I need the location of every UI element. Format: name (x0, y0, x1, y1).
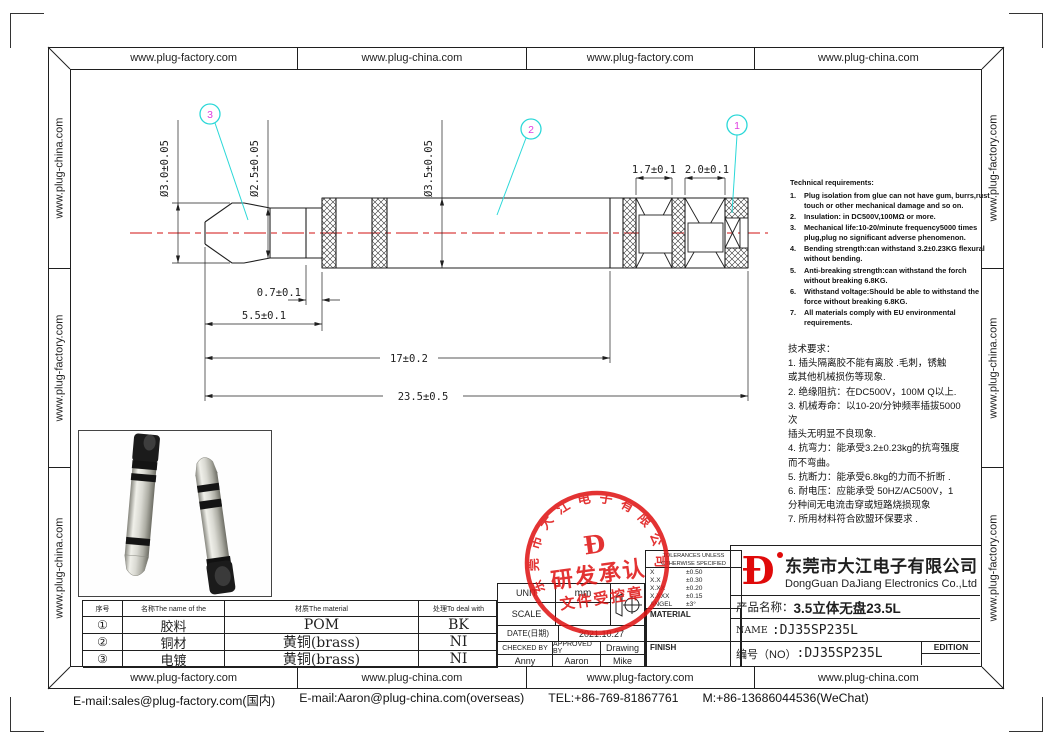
border-band-bottom: www.plug-factory.com www.plug-china.com … (70, 667, 982, 689)
hatch-bands (322, 198, 748, 268)
cn-line: 分种间无电流击穿或短路烧损现象 (788, 499, 996, 513)
table-cell: ③ (83, 651, 123, 668)
projection-symbol-cell (610, 583, 645, 626)
drawn-by-name: Mike (600, 654, 645, 667)
name-label: NAME (736, 625, 768, 636)
name-row: NAME :DJ35SP235L (731, 619, 980, 642)
crop-mark-top-right (1009, 13, 1043, 48)
border-url: www.plug-factory.com (70, 667, 298, 689)
item-text: Plug isolation from glue can not have gu… (804, 191, 992, 211)
drawing-label: Drawing (600, 641, 645, 655)
mobile-wechat: M:+86-13686044536(WeChat) (703, 691, 869, 709)
plug-technical-drawing: Ø3.0±0.05 Ø2.5±0.05 Ø3.5±0.05 1.7±0.1 2.… (120, 85, 780, 430)
crop-mark-bottom-left (10, 697, 44, 732)
checked-by-name: Anny (497, 654, 553, 667)
tol-key: X.X (646, 577, 686, 585)
dajiang-logo-icon: Ð (741, 552, 774, 590)
border-url-text: www.plug-china.com (53, 517, 65, 618)
border-url: www.plug-china.com (755, 47, 982, 69)
col-header-no: 序号 (83, 601, 123, 617)
technical-requirements-en: Technical requirements: 1.Plug isolation… (790, 178, 992, 329)
cn-line: 7. 所用材料符合欧盟环保要求 . (788, 513, 996, 527)
border-url: www.plug-china.com (755, 667, 982, 689)
email-overseas: E-mail:Aaron@plug-china.com(overseas) (299, 691, 524, 709)
table-cell: ② (83, 634, 123, 651)
date-label: DATE(日期) (497, 625, 559, 642)
dim-0-7: 0.7±0.1 (257, 287, 301, 299)
item-number: 5. (790, 266, 804, 286)
product-label: 产品名称： (736, 599, 794, 615)
cn-line: 1. 插头隔离胶不能有离胶 .毛刺，锈触 (788, 357, 996, 371)
item-number: 7. (790, 308, 804, 328)
product-photo (78, 430, 272, 597)
border-url: www.plug-factory.com (70, 47, 298, 69)
item-text: Anti-breaking strength:can withstand the… (804, 266, 992, 286)
item-text: Withstand voltage:Should be able to with… (804, 287, 992, 307)
item-number: 4. (790, 244, 804, 264)
materials-table: 序号 名称The name of the 材质The material 处理To… (82, 600, 497, 667)
dim-dia-3-0: Ø3.0±0.05 (159, 140, 171, 197)
cn-line: 2. 绝缘阻抗：在DC500V，100M Q以上. (788, 386, 996, 400)
cn-line: 次 (788, 414, 996, 428)
border-url: www.plug-factory.com (527, 667, 755, 689)
unit-value: mm (555, 583, 611, 603)
product-row: 产品名称： 3.5立体无盘23.5L (731, 596, 980, 619)
item-number: 6. (790, 287, 804, 307)
dim-17: 17±0.2 (390, 353, 428, 365)
balloon-number-1: 1 (734, 120, 740, 132)
material-label: MATERIAL (646, 608, 741, 642)
technical-requirements-cn: 技术要求： 1. 插头隔离胶不能有离胶 .毛刺，锈触 或其他机械损伤等现象. 2… (788, 343, 996, 528)
dimension-labels: Ø3.0±0.05 Ø2.5±0.05 Ø3.5±0.05 1.7±0.1 2.… (159, 140, 729, 403)
dim-1-7: 1.7±0.1 (632, 164, 676, 176)
finish-label: FINISH (646, 641, 741, 667)
item-text: Insulation: in DC500V,100MΩ or more. (804, 212, 992, 222)
company-row: Ð 东莞市大江电子有限公司 DongGuan DaJiang Electroni… (731, 546, 980, 596)
tolerance-header: TOLERANCES UNLESS OTHERWISE SPECIFIED (646, 551, 741, 568)
tolerance-block: TOLERANCES UNLESS OTHERWISE SPECIFIED X±… (645, 550, 742, 667)
item-text: Bending strength:can withstand 3.2±0.23K… (804, 244, 992, 264)
item-number: 1. (790, 191, 804, 211)
cn-line: 6. 耐电压：应能承受 50HZ/AC500V，1 (788, 485, 996, 499)
spec-block: UNIT mm SCALE DATE(日期) 2021.10.27 CHECKE… (497, 583, 645, 667)
edition-label: EDITION (922, 642, 980, 654)
item-text: Mechanical life:10-20/minute frequency50… (804, 223, 992, 243)
table-cell: ① (83, 617, 123, 634)
company-name-cn: 东莞市大江电子有限公司 (785, 552, 980, 577)
date-value: 2021.10.27 (558, 625, 645, 642)
third-angle-projection-icon (613, 587, 643, 623)
tol-key: X (646, 569, 686, 577)
cn-line: 插头无明显不良现象. (788, 428, 996, 442)
balloon-callouts: 3 2 1 (200, 104, 747, 220)
item-number: 2. (790, 212, 804, 222)
border-url: www.plug-china.com (298, 47, 526, 69)
telephone: TEL:+86-769-81867761 (548, 691, 678, 709)
number-label: 编号（NO） (736, 646, 797, 662)
approved-by-name: Aaron (552, 654, 601, 667)
table-cell: NI (419, 651, 498, 668)
cn-line: 3. 机械寿命：以10-20/分钟频率插拔5000 (788, 400, 996, 414)
cn-line: 或其他机械损伤等现象. (788, 371, 996, 385)
border-url-text: www.plug-china.com (53, 118, 65, 219)
item-text: All materials comply with EU environment… (804, 308, 992, 328)
table-cell: POM (225, 617, 419, 634)
col-header-treatment: 处理To deal with (419, 601, 498, 617)
balloon-number-3: 3 (207, 109, 213, 121)
tol-key: X.XXX (646, 593, 686, 601)
table-cell: BK (419, 617, 498, 634)
table-cell: 黄铜(brass) (225, 651, 419, 668)
title-block: Ð 东莞市大江电子有限公司 DongGuan DaJiang Electroni… (730, 545, 982, 667)
product-value: 3.5立体无盘23.5L (794, 597, 901, 617)
table-cell: 铜材 (123, 634, 225, 651)
border-url-text: www.plug-factory.com (53, 315, 65, 422)
balloon-number-2: 2 (528, 124, 534, 136)
email-domestic: E-mail:sales@plug-factory.com(国内) (73, 691, 275, 709)
tol-value: ±0.20 (686, 585, 702, 593)
border-url: www.plug-factory.com (527, 47, 755, 69)
name-value: :DJ35SP235L (772, 623, 858, 638)
table-cell: NI (419, 634, 498, 651)
company-name-en: DongGuan DaJiang Electronics Co.,Ltd (785, 578, 980, 590)
border-url: www.plug-china.com (48, 69, 70, 269)
cn-line: 技术要求： (788, 343, 996, 357)
border-url: www.plug-china.com (48, 468, 70, 667)
edition-box: EDITION (921, 642, 980, 665)
scale-value (555, 602, 611, 626)
col-header-material: 材质The material (225, 601, 419, 617)
company-logo: Ð (731, 552, 785, 590)
dim-2-0: 2.0±0.1 (685, 164, 729, 176)
tol-value: ±0.50 (686, 569, 702, 577)
tol-value: ±0.30 (686, 577, 702, 585)
col-header-name: 名称The name of the (123, 601, 225, 617)
table-cell: 胶料 (123, 617, 225, 634)
tech-req-title: Technical requirements: (790, 178, 992, 188)
border-band-top: www.plug-factory.com www.plug-china.com … (70, 47, 982, 69)
number-value: :DJ35SP235L (797, 646, 883, 661)
dim-5-5: 5.5±0.1 (242, 310, 286, 322)
footer-contacts: E-mail:sales@plug-factory.com(国内) E-mail… (73, 691, 993, 709)
border-url-text: www.plug-factory.com (987, 514, 999, 621)
approved-by-label: APPROVED BY (552, 641, 601, 655)
checked-by-label: CHECKED BY (497, 641, 553, 655)
tolerance-rows: X±0.50 X.X±0.30 X.XX±0.20 X.XXX±0.15 ANG… (646, 569, 741, 609)
table-cell: 黄铜(brass) (225, 634, 419, 651)
cn-line: 5. 抗断力：能承受6.8kg的力而不折断 . (788, 471, 996, 485)
border-band-left: www.plug-china.com www.plug-factory.com … (48, 69, 70, 667)
tol-key: X.XX (646, 585, 686, 593)
scale-label: SCALE (497, 602, 556, 626)
dim-dia-3-5: Ø3.5±0.05 (423, 140, 435, 197)
border-url: www.plug-factory.com (48, 269, 70, 469)
dim-23-5: 23.5±0.5 (398, 391, 449, 403)
table-cell: 电镀 (123, 651, 225, 668)
drawing-sheet: www.plug-factory.com www.plug-china.com … (0, 0, 1052, 744)
dim-dia-2-5: Ø2.5±0.05 (249, 140, 261, 197)
unit-label: UNIT (497, 583, 556, 603)
tol-value: ±0.15 (686, 593, 702, 601)
border-url: www.plug-china.com (298, 667, 526, 689)
crop-mark-top-left (10, 13, 44, 48)
cn-line: 4. 抗弯力：能承受3.2±0.23kg的抗弯强度 (788, 442, 996, 456)
item-number: 3. (790, 223, 804, 243)
cn-line: 而不弯曲。 (788, 457, 996, 471)
crop-mark-bottom-right (1009, 697, 1043, 732)
